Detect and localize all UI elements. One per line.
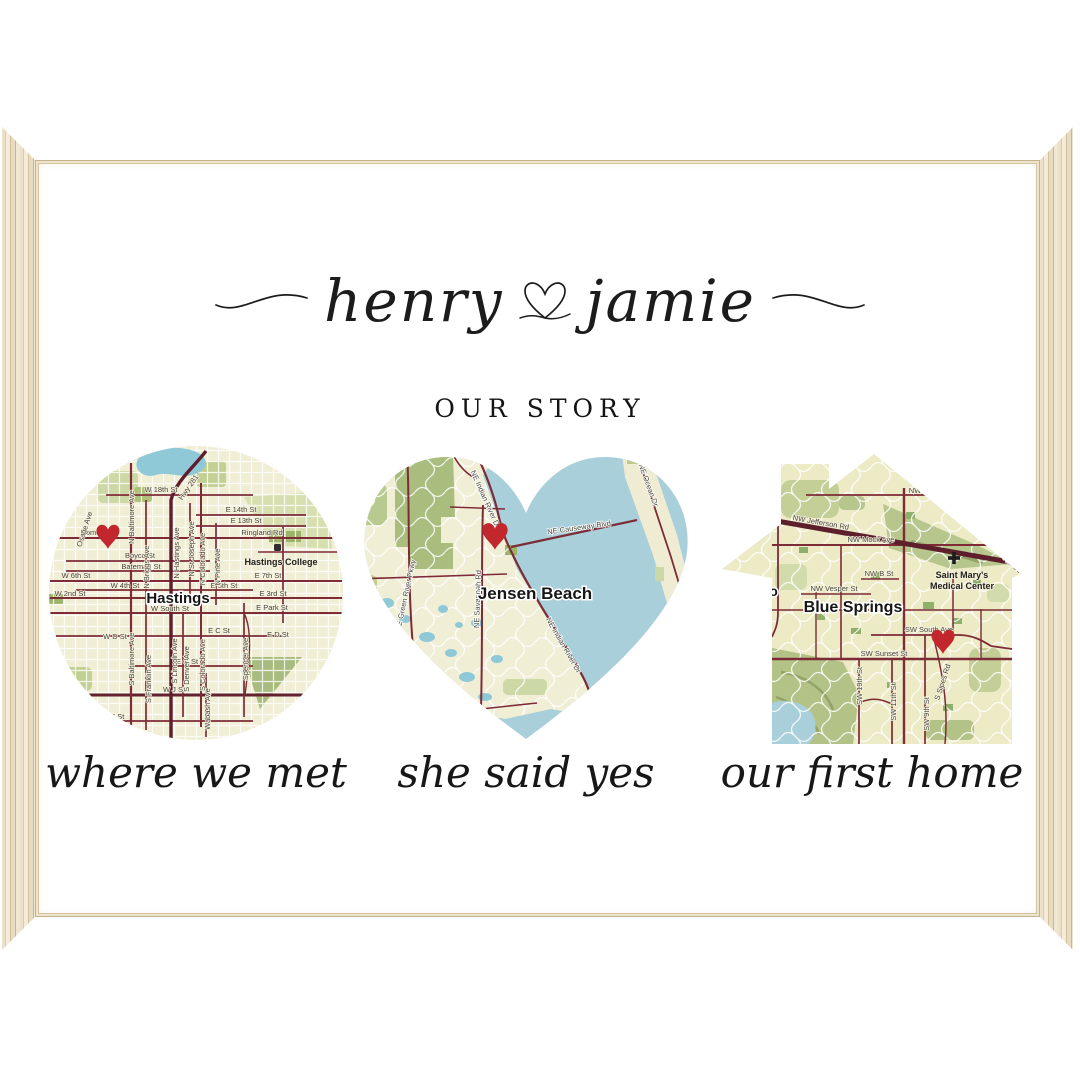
frame-right-bar (1040, 127, 1073, 950)
svg-text:S Denver Ave: S Denver Ave (182, 646, 191, 692)
svg-text:S Franklin Ave: S Franklin Ave (144, 655, 153, 703)
svg-text:E 13th St: E 13th St (231, 516, 263, 525)
svg-text:SW 19th St: SW 19th St (855, 666, 864, 705)
svg-text:E D St: E D St (267, 630, 290, 639)
svg-text:N Hastings Ave: N Hastings Ave (172, 527, 181, 578)
svg-text:N Pine Ave: N Pine Ave (213, 549, 222, 586)
svg-text:W 2nd St: W 2nd St (55, 589, 87, 598)
saint-marys-label-2: Medical Center (930, 581, 995, 591)
map-she-said-yes: NE Indian River Dr NE Indian River Dr NE… (355, 447, 697, 744)
svg-text:SW Sunset St: SW Sunset St (861, 649, 909, 658)
svg-text:NW Vesper St: NW Vesper St (810, 584, 858, 593)
svg-text:SW 11th St: SW 11th St (889, 682, 898, 720)
svg-text:W M St: W M St (100, 712, 125, 721)
svg-text:S Lincoln Ave: S Lincoln Ave (170, 638, 179, 683)
flourish-left-icon (214, 281, 310, 321)
svg-text:Spencer Ave: Spencer Ave (241, 638, 250, 680)
frame-bottom-bar (2, 917, 1073, 950)
svg-text:W 4th St: W 4th St (111, 581, 141, 590)
caption-our-first-home: our first home (711, 748, 1033, 798)
jensen-beach-city-label: Jensen Beach (478, 584, 592, 603)
svg-text:NW Duncan: NW Duncan (909, 486, 949, 495)
svg-text:N Briggs Ave: N Briggs Ave (142, 545, 151, 588)
hastings-map-graphics: W 18th St E 14th St E 13th St Ringland R… (48, 445, 344, 741)
blue-springs-map-svg: NW Duncan NW Jefferson Rd NW Mock Ave NW… (721, 452, 1023, 745)
name-left: henry (324, 272, 504, 330)
frame-top-bar (2, 127, 1073, 160)
flourish-right-icon (770, 281, 866, 321)
college-poi-icon (274, 544, 281, 551)
jensen-beach-map-svg: NE Indian River Dr NE Indian River Dr NE… (355, 447, 697, 744)
map-where-we-met: W 18th St E 14th St E 13th St Ringland R… (48, 445, 344, 741)
svg-text:Boyce St: Boyce St (125, 551, 156, 560)
svg-text:N Colorado Ave: N Colorado Ave (198, 533, 207, 585)
map-our-first-home: NW Duncan NW Jefferson Rd NW Mock Ave NW… (721, 452, 1023, 745)
svg-text:S Colorado Ave: S Colorado Ave (198, 639, 207, 691)
svg-text:W 18th St: W 18th St (145, 485, 179, 494)
jensen-map-graphics: NE Indian River Dr NE Indian River Dr NE… (355, 447, 697, 744)
svg-text:Wabash Ave: Wabash Ave (203, 688, 212, 730)
svg-text:N Baltimore Ave: N Baltimore Ave (127, 490, 136, 544)
poster-subtitle: OUR STORY (0, 394, 1080, 423)
blue-springs-city-label: Blue Springs (804, 599, 903, 616)
partial-city-label: ugo (752, 583, 778, 599)
svg-text:E C St: E C St (208, 626, 231, 635)
hastings-map-svg: W 18th St E 14th St E 13th St Ringland R… (48, 445, 344, 741)
svg-text:W D St: W D St (103, 632, 128, 641)
svg-text:S Baltimore Ave: S Baltimore Ave (127, 632, 136, 685)
svg-text:Ringland Rd: Ringland Rd (241, 528, 282, 537)
svg-text:SW 9th St: SW 9th St (922, 696, 931, 731)
heart-outline-icon (518, 274, 572, 328)
svg-text:E 14th St: E 14th St (226, 505, 258, 514)
hastings-college-label: Hastings College (244, 557, 317, 567)
svg-text:NW B St: NW B St (865, 569, 895, 578)
svg-text:E Park St: E Park St (256, 603, 289, 612)
name-right: jamie (586, 272, 756, 330)
svg-text:NW Mock Ave: NW Mock Ave (848, 535, 895, 544)
saint-marys-label-1: Saint Mary's (936, 570, 989, 580)
couple-names: henry jamie (0, 272, 1080, 330)
caption-where-we-met: where we met (38, 748, 354, 798)
poster-photo: henry jamie OUR STORY (0, 0, 1080, 1080)
bluesprings-map-graphics: NW Duncan NW Jefferson Rd NW Mock Ave NW… (721, 452, 1023, 745)
svg-text:W 6th St: W 6th St (62, 571, 92, 580)
hastings-city-label: Hastings (146, 590, 209, 607)
svg-text:E 3rd St: E 3rd St (259, 589, 287, 598)
svg-text:N St Joseph Ave: N St Joseph Ave (187, 521, 196, 576)
frame-left-bar (2, 127, 35, 950)
svg-text:E 7th St: E 7th St (255, 571, 283, 580)
caption-she-said-yes: she said yes (355, 748, 697, 798)
